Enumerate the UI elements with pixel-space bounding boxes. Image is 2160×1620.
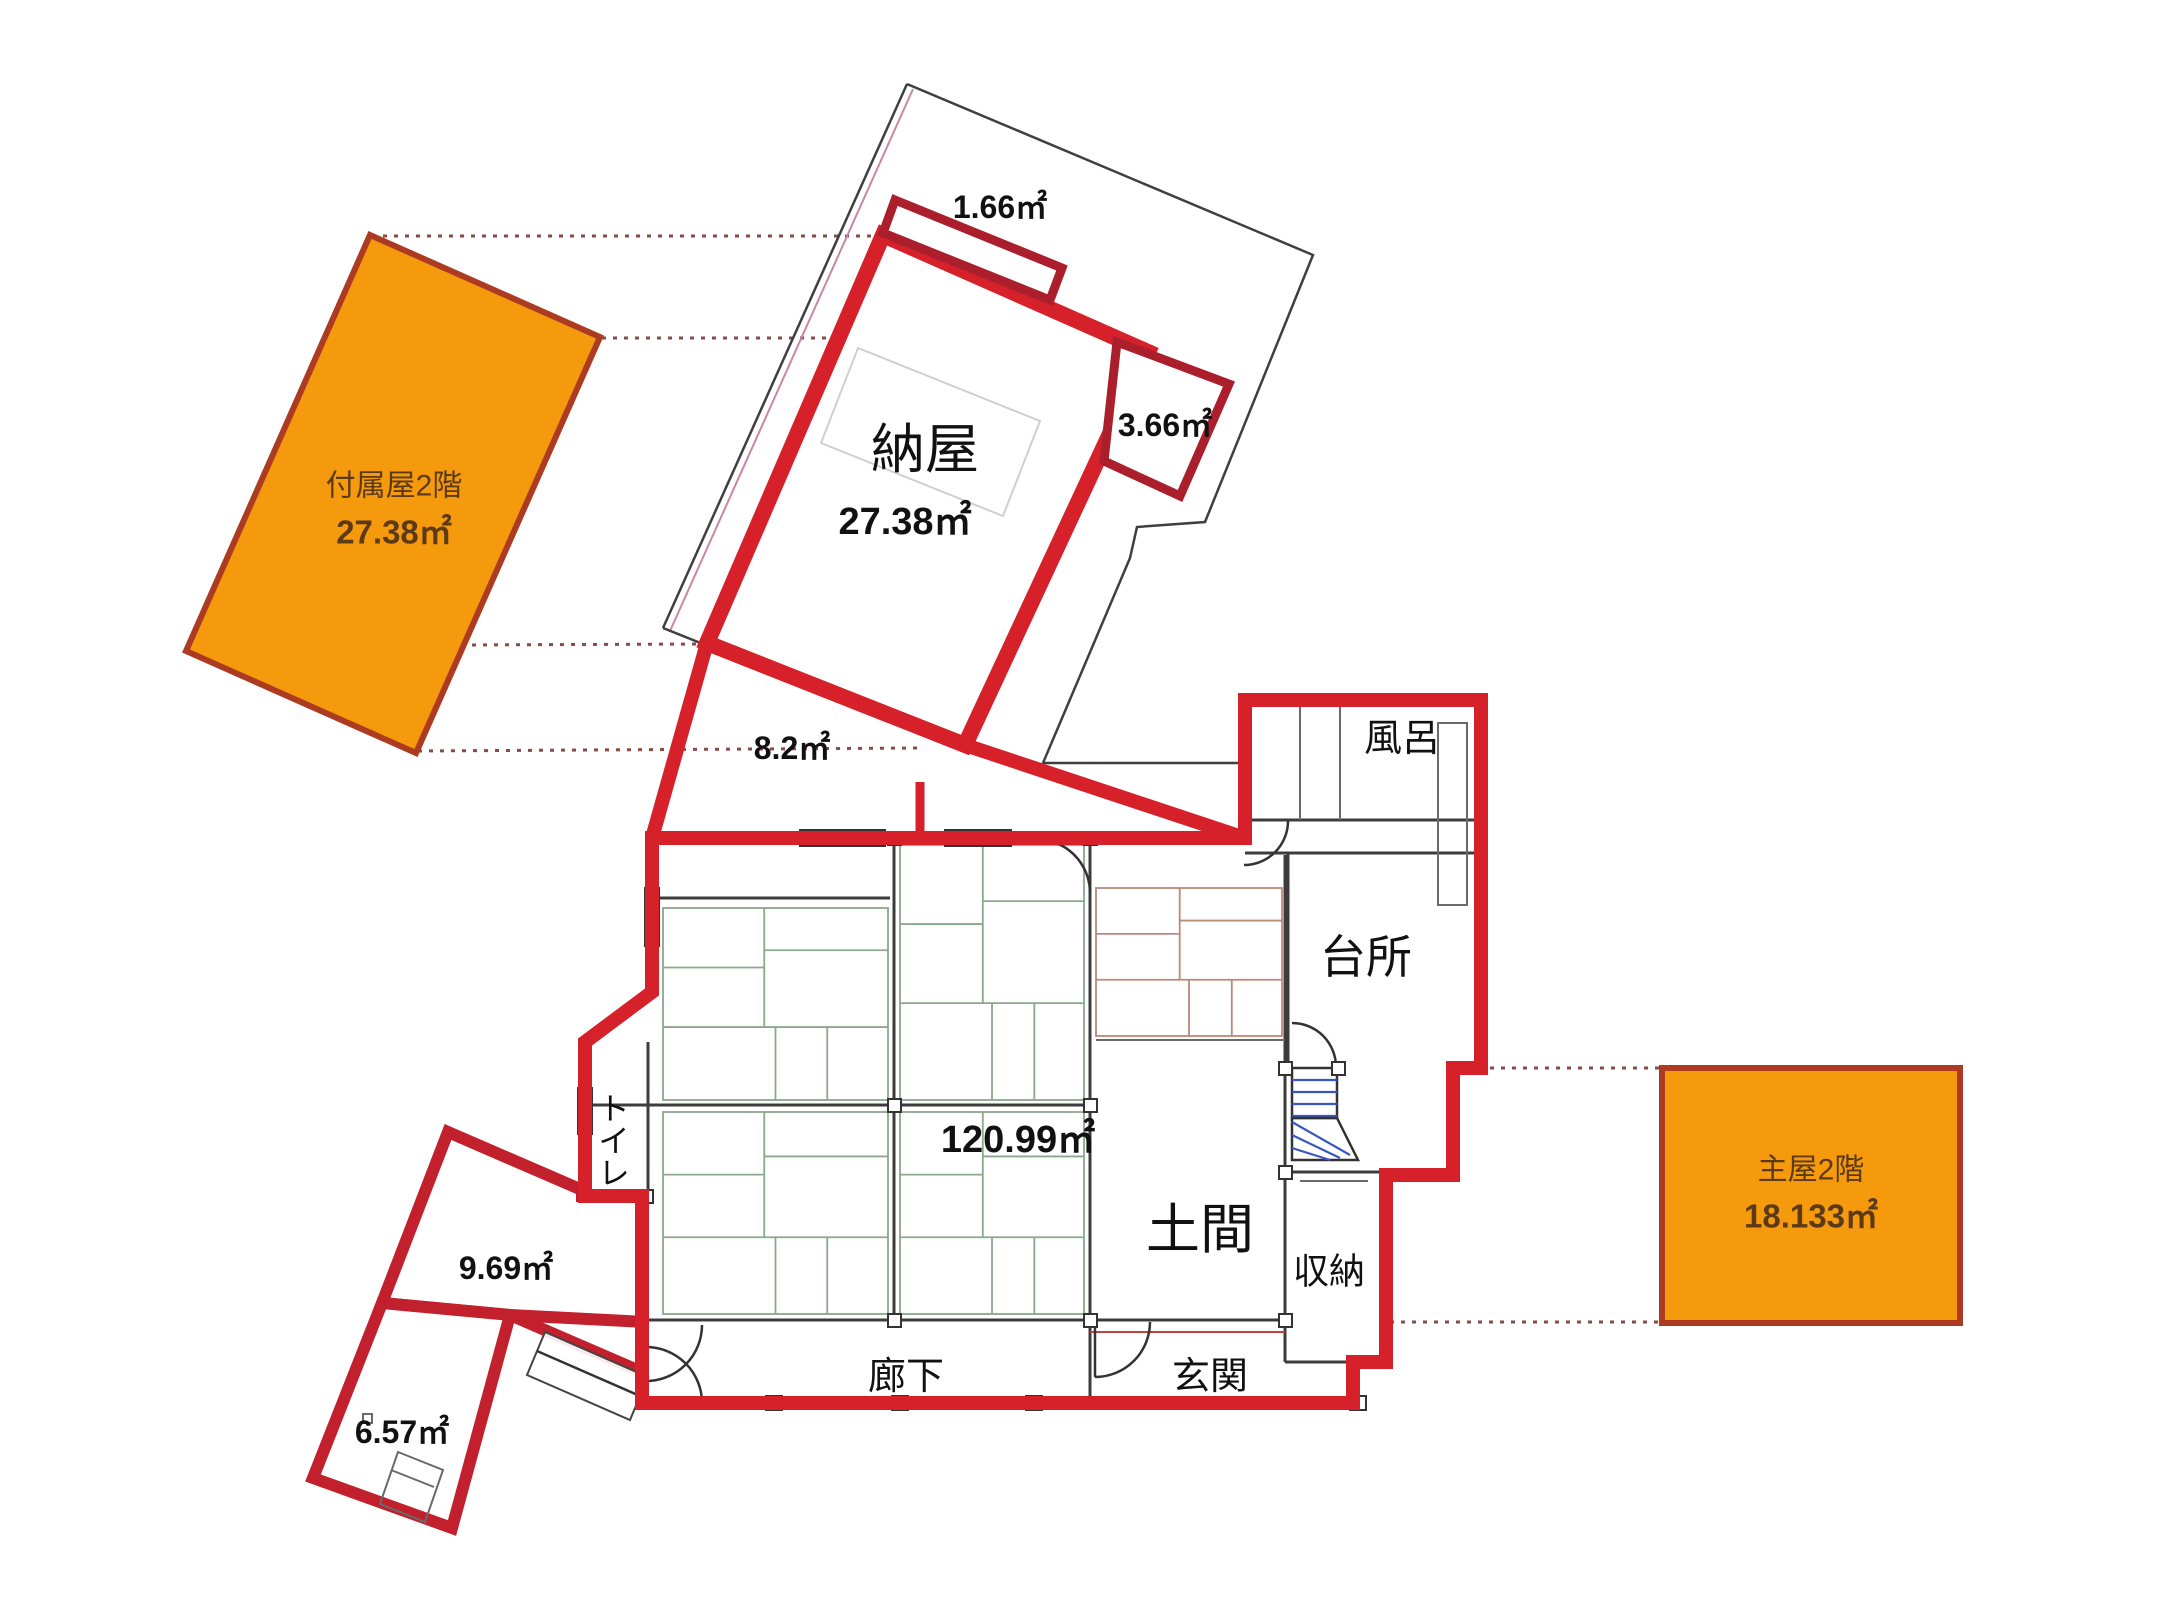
attached-building-2f-overlay: 付属屋2階 27.38㎡ xyxy=(186,235,600,753)
label-doma: 土間 xyxy=(1146,1200,1254,1260)
label-bath: 風呂 xyxy=(1364,718,1440,760)
label-entrance: 玄関 xyxy=(1172,1356,1248,1398)
label-main-2f-name: 主屋2階 xyxy=(1758,1154,1865,1187)
label-attached-2f-area: 27.38㎡ xyxy=(336,514,452,551)
label-main-floor-area: 120.99㎡ xyxy=(941,1118,1095,1161)
label-storage: 収納 xyxy=(1293,1251,1365,1292)
label-barn-area: 27.38㎡ xyxy=(838,500,971,543)
label-main-2f-area: 18.133㎡ xyxy=(1744,1198,1878,1235)
label-barn-name: 納屋 xyxy=(871,420,979,480)
main-house-floor xyxy=(585,700,1481,1403)
label-attached-2f-name: 付属屋2階 xyxy=(326,470,463,503)
label-toilet: トイレ xyxy=(594,1092,630,1188)
main-house-2f-overlay: 主屋2階 18.133㎡ xyxy=(1662,1068,1960,1323)
floor-plan-svg: 付属屋2階 27.38㎡ 主屋2階 18.133㎡ xyxy=(0,0,2160,1620)
floor-plan-page: 付属屋2階 27.38㎡ 主屋2階 18.133㎡ xyxy=(0,0,2160,1620)
label-kitchen: 台所 xyxy=(1320,931,1412,983)
label-annex-top-area: 1.66㎡ xyxy=(953,189,1047,225)
label-corridor: 廊下 xyxy=(868,1356,944,1398)
label-connector-area: 8.2㎡ xyxy=(754,730,831,766)
label-annex-left-lower-area: 6.57㎡ xyxy=(355,1414,449,1450)
label-annex-left-upper-area: 9.69㎡ xyxy=(459,1250,553,1286)
label-annex-right-area: 3.66㎡ xyxy=(1118,407,1212,443)
